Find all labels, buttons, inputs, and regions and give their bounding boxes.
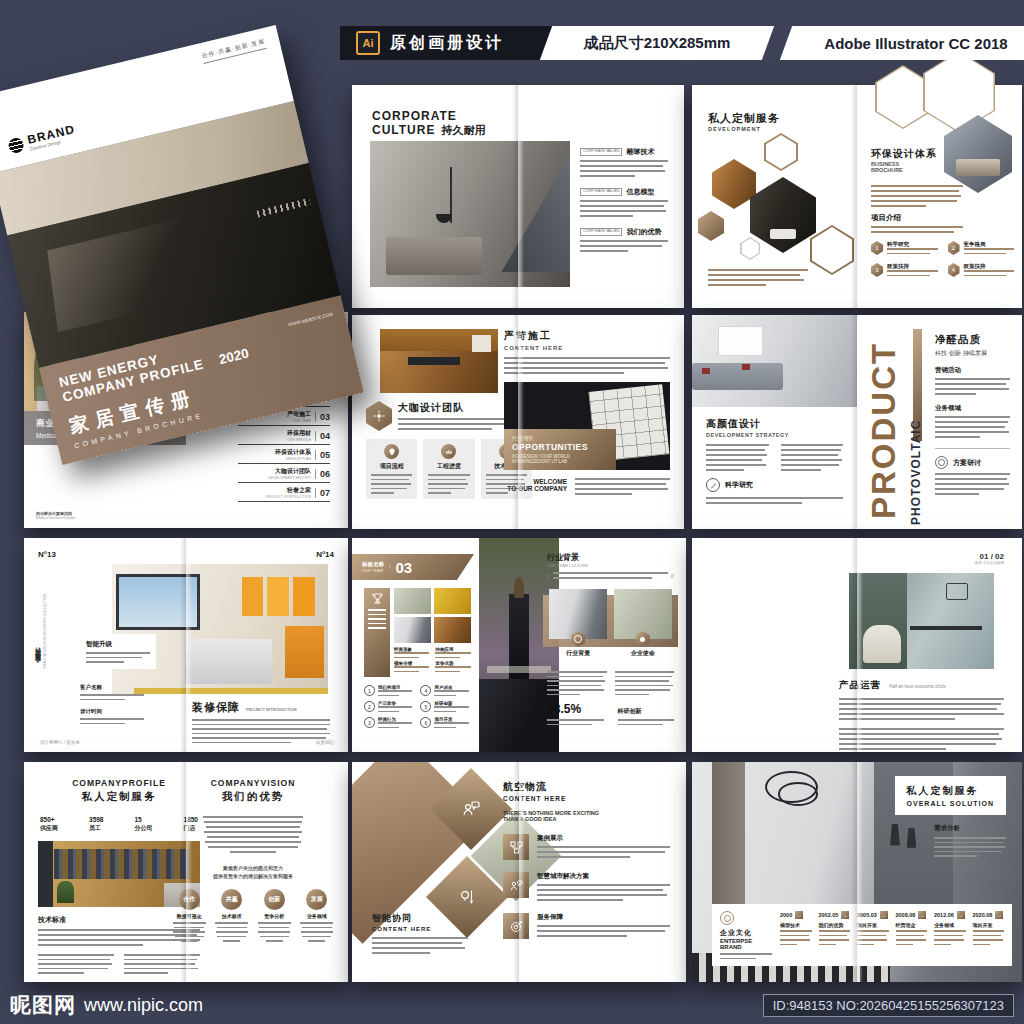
- spread-corporate-culture: CORPORATE CULTURE 持久耐用 CORPORATE VALUES …: [352, 85, 684, 308]
- arrow-badge: →: [795, 911, 803, 919]
- brand-logo: BRAND Creative Design: [7, 122, 78, 156]
- number-circle: 4: [420, 685, 431, 696]
- smart-item-label: 服务保障: [537, 913, 670, 922]
- pencil-icon: [706, 478, 720, 492]
- thumb-photo: [434, 588, 471, 614]
- greek-lines: [580, 200, 668, 217]
- overall-title-cn: 私人定制服务: [907, 784, 994, 798]
- team-card: 工程进度: [423, 439, 474, 499]
- overlay-en: OPPORTUNITIES: [512, 442, 608, 452]
- org-chart-icon: [503, 834, 529, 860]
- product-section1: 营销活动: [935, 366, 1010, 375]
- timeline-label: 项目开发: [857, 922, 889, 928]
- greek-lines: [504, 357, 670, 374]
- timeline-year: 2002.05: [819, 912, 839, 918]
- software-label: Adobe Illustrator CC 2018: [786, 26, 1024, 60]
- greek-lines: [435, 666, 470, 672]
- floorplan-photo: 经济增长 OPPORTUNITIES WE DESIGN YOUR WORLD …: [504, 382, 670, 470]
- culture-title-en2: CULTURE: [372, 123, 435, 137]
- ourteam-grid: 经营形象 结构应用 销售业绩 竞争优势: [352, 588, 479, 677]
- spread-ourteam-03: 标题名称 OUR TEAM / 03 经营形象: [352, 538, 686, 752]
- greek-lines: [871, 185, 963, 207]
- greek-lines: [372, 937, 468, 954]
- corporate-values-tag: CORPORATE VALUES: [580, 228, 622, 236]
- dir-num: 07: [315, 488, 330, 498]
- spread-overall-solution: 私人定制服务 OVERALL SOLUTION 需求分析 企业文化 ENTERP…: [692, 762, 1022, 982]
- timeline-year: 2008.08: [896, 912, 916, 918]
- target-arrow-icon: [503, 913, 529, 939]
- arrow-badge: →: [957, 911, 965, 919]
- arrow-badge: →: [841, 911, 849, 919]
- construction-title-en: CONTENT HERE: [504, 345, 670, 351]
- nipic-template-preview: { "header": {"ai_badge":"Ai","title":"原创…: [0, 0, 1024, 1024]
- industry-title-cn: 行业背景: [547, 552, 674, 563]
- greek-lines: [547, 719, 603, 725]
- stat: 3598员工: [89, 816, 103, 833]
- number-circle: 2: [364, 701, 375, 712]
- smart-item: 智慧城市解决方案: [503, 872, 670, 901]
- smart-right-title-en: CONTENT HERE: [503, 795, 670, 802]
- watermark-bar: 昵图网 www.nipic.com ID:948153 NO:202604251…: [0, 986, 1024, 1024]
- hexagon-photo: [750, 177, 816, 253]
- greek-lines: [394, 652, 429, 658]
- greek-lines: [86, 652, 150, 663]
- smart-item: 服务保障: [503, 913, 670, 939]
- directory-item: 大咖设计团队DEVELOPMENT HISTORY 06: [238, 463, 330, 482]
- greek-lines: [964, 248, 1015, 254]
- timeline-year: 2020.08: [973, 912, 993, 918]
- ourteam-numbered-list: 1我们的项目 4用户诉求 2产品竞争 5科研创新 3经营行为 6项目开发: [352, 677, 479, 728]
- hexdev-numbered: 1 科学研究 2 竞争格局 3 政策扶持 4 政策扶持: [871, 241, 1014, 277]
- dir-num: 06: [315, 469, 330, 479]
- stat-label: 供应商: [40, 824, 58, 833]
- hexdev-left-title-en: DEVELOPMENT: [708, 126, 780, 132]
- dir-num: 05: [315, 450, 330, 460]
- vision-title-en: COMPANYVISION: [172, 778, 334, 788]
- greek-lines: [618, 719, 674, 725]
- circle-sublabel: 竞争分析: [257, 913, 292, 919]
- greek-lines: [547, 671, 606, 695]
- directory-item: 环保设计体系SERVICE PLAN 05: [238, 444, 330, 463]
- greek-lines: [172, 816, 334, 853]
- arrow-badge: →: [918, 911, 926, 919]
- spread-design-team: 大咖设计团队 项目流程 工程进度 技术标准 严苛施工 CONTENT: [352, 315, 684, 529]
- side-vertical-text: 企业画册设计 GRADUATION DESIGN WORKS COLLECTIO…: [34, 594, 47, 669]
- brand-logo-icon: [7, 136, 25, 154]
- construction-title-cn: 严苛施工: [504, 329, 670, 343]
- number-circle: 3: [364, 717, 375, 728]
- product-left-tag: 科学研究: [725, 480, 753, 490]
- vision-note2: 提供有竞争力的通信解决方案和服务: [172, 873, 334, 879]
- stat-value: 15: [135, 816, 153, 823]
- greek-lines: [435, 652, 470, 658]
- dir-cn: 环保设计体系: [238, 448, 311, 457]
- no13-main: 装修保障 PROJECT INTRODUCTION: [192, 700, 330, 743]
- greek-lines: [580, 240, 668, 252]
- no13-main-cn: 装修保障: [192, 700, 240, 715]
- drawers-right-subtitle: Half an hour economic circle: [889, 684, 946, 689]
- brand-mark-icon: [720, 911, 734, 925]
- greek-lines: [887, 270, 938, 276]
- spread-product: 高颜值设计 DEVELOPMENT STRATEGY 科学研究 PRODUCT …: [692, 315, 1022, 529]
- culture-title-en1: CORPORATE: [372, 109, 485, 123]
- spread-drawers: 服务运维 品牌营销 技术标准 01 / 02 家居·品质生活画册: [692, 538, 1022, 752]
- vision-circle-item: 合作 数据可视化: [172, 889, 207, 942]
- vision-note1: 聚焦客户关注的痛点和压力: [172, 865, 334, 871]
- timeline-year: 2000: [780, 912, 792, 918]
- ribbon-cn: 标题名称: [362, 561, 384, 568]
- product-left-page: 高颜值设计 DEVELOPMENT STRATEGY 科学研究: [692, 315, 857, 529]
- corporate-values-tag: CORPORATE VALUES: [580, 188, 622, 196]
- no13-footer-right: 联系我们: [316, 740, 334, 745]
- timeline-brand-en2: BRAND: [720, 944, 772, 950]
- brochure-cover-mockup: 合作·共赢·创新·发展 BRAND Creative Design NEW EN…: [0, 25, 364, 465]
- greek-lines: [839, 698, 1004, 720]
- dir-en: OUR SERVICE: [238, 438, 311, 442]
- greek-lines: [38, 954, 114, 974]
- page-number: 01 / 02: [839, 552, 1004, 561]
- stat-label: 员工: [89, 824, 103, 833]
- no13-main-en: PROJECT INTRODUCTION: [246, 707, 297, 712]
- vision-circle-item: 发展 业务领域: [300, 889, 335, 942]
- overall-title-box: 私人定制服务 OVERALL SOLUTION: [895, 776, 1006, 815]
- greek-lines: [434, 722, 468, 728]
- greek-lines: [935, 473, 1010, 495]
- stat-label: 分公司: [135, 824, 153, 833]
- timeline-item: 2002.05→ 我们的优势: [819, 911, 851, 959]
- side-text-en: GRADUATION DESIGN WORKS COLLECTION: [43, 594, 47, 669]
- greek-lines: [964, 270, 1015, 276]
- overlay-cn: 经济增长: [512, 435, 608, 442]
- hex-number-badge: 3: [871, 263, 883, 277]
- stat-value: 98.5%: [547, 702, 603, 716]
- team-card-label: 项目流程: [371, 462, 412, 471]
- side-text-cn: 企业画册设计: [34, 594, 43, 669]
- smart-item: 案例展示: [503, 834, 670, 860]
- people-chat-icon: [503, 872, 529, 898]
- number-circle: 5: [420, 701, 431, 712]
- hexdev-right-title-cn: 环保设计体系: [871, 147, 937, 161]
- smart-tagline2: THAN A GOOD IDEA: [503, 816, 670, 822]
- top-info-bar: Ai 原创画册设计 成品尺寸210X285mm Adobe Illustrato…: [340, 26, 1024, 60]
- ourteam-right-page: 行业背景 OUR TEAM CULTURE // // 行业背景 企业使命: [535, 538, 686, 752]
- greek-lines: [80, 718, 144, 724]
- cover-slogan: 合作·共赢·创新·发展: [201, 37, 267, 64]
- timeline-item: 2008.08→ 经营理念: [896, 911, 928, 959]
- greek-lines: [887, 248, 938, 254]
- arrow-badge: →: [995, 911, 1003, 919]
- hexdev-right-sub2: BROCHURE: [871, 167, 937, 173]
- directory-item: 环保用材OUR SERVICE 04: [238, 425, 330, 444]
- no13-label2: 客户名称: [80, 684, 144, 691]
- hexagon-photo: [712, 159, 756, 209]
- product-right-subtitle: 科技·创新·持续发展: [935, 349, 1010, 358]
- product-section2: 业务领域: [935, 404, 1010, 413]
- hexdev-item-label: 科学研究: [887, 241, 938, 248]
- hexdev-item-label: 政策扶持: [964, 263, 1015, 270]
- stat-value: 850+: [40, 816, 58, 823]
- pin-icon: [384, 444, 399, 459]
- timeline-item: 2020.08→ 项目开发: [973, 911, 1005, 959]
- product-right-tag: 方案研讨: [953, 458, 981, 468]
- vision-circle-item: 共赢 技术标准: [215, 889, 250, 942]
- title-ribbon: 标题名称 OUR TEAM / 03: [352, 554, 474, 580]
- greek-lines: [257, 922, 292, 942]
- culture-title: CORPORATE CULTURE 持久耐用: [372, 109, 485, 138]
- card-label: 企业使命: [614, 649, 672, 658]
- adobe-illustrator-icon: Ai: [356, 31, 380, 55]
- ribbon-number: 03: [395, 559, 412, 576]
- greek-lines: [434, 706, 468, 712]
- vision-circles: 合作 数据可视化 共赢 技术标准 创新 竞争分析 发展 业务领域: [172, 889, 334, 942]
- greek-lines: [934, 837, 1006, 857]
- timeline-item: 2000→ 模型技术: [780, 911, 812, 959]
- greek-lines: [857, 930, 889, 945]
- timeline-brand-cn: 企业文化: [720, 928, 772, 938]
- person-chat-icon: [461, 799, 481, 819]
- circle-keyword: 创新: [264, 889, 285, 910]
- smart-item-label: 案例展示: [537, 834, 670, 843]
- timeline-item: 2005.03→ 项目开发: [857, 911, 889, 959]
- thumb-photo: [394, 617, 431, 643]
- overlay-card: 智能升级: [80, 634, 156, 669]
- trophy-panel: [364, 588, 390, 677]
- greek-lines: [896, 930, 928, 945]
- intro-footnote: 商业解决方案提供商 Medical Solution Provider: [36, 511, 76, 520]
- timeline-item: 2012.06→ 业务领域: [934, 911, 966, 959]
- circle-keyword: 发展: [306, 889, 327, 910]
- hexdev-item-label: 政策扶持: [887, 263, 938, 270]
- industry-card: 企业使命: [614, 589, 672, 658]
- greek-lines: [378, 722, 412, 728]
- product-vertical-title: PRODUCT: [865, 325, 903, 519]
- overlay-sub2: MINIMINCIDOUNT UT LAB: [512, 459, 608, 464]
- dir-en: SERVICE PLAN: [238, 457, 311, 461]
- timeline-label: 业务领域: [934, 922, 966, 928]
- greek-lines: [553, 572, 667, 579]
- greek-lines: [300, 922, 335, 942]
- spread-company-profile: COMPANYPROFILE 私人定制服务 850+供应商 3598员工 15分…: [24, 762, 348, 982]
- product-left-title-cn: 高颜值设计: [706, 417, 843, 431]
- site-url: www.nipic.com: [84, 995, 203, 1016]
- balcony-photo: [849, 573, 994, 669]
- timeline-year: 2005.03: [857, 912, 877, 918]
- dir-en: PRODUCT INTRODUCTION: [238, 495, 311, 499]
- arrow-badge: →: [880, 911, 888, 919]
- target-icon: [935, 456, 948, 469]
- circle-sublabel: 技术标准: [215, 913, 250, 919]
- page-number-sub: 家居·品质生活画册: [839, 561, 1004, 565]
- smart-item-label: 智慧城市解决方案: [537, 872, 670, 881]
- kitchen-photo: [380, 329, 498, 393]
- smart-right-page: 航空物流 CONTENT HERE THERE'S NOTHING MORE E…: [487, 762, 686, 982]
- greek-lines: [378, 706, 412, 712]
- team-right-page: 严苛施工 CONTENT HERE 经济增长 OPPORTUNITIES WE …: [488, 315, 684, 529]
- industry-card: 行业背景: [549, 589, 607, 658]
- welcome-line1: WELCOME: [504, 478, 567, 485]
- product-size-label: 成品尺寸210X285mm: [546, 26, 768, 60]
- team-card-label: 工程进度: [428, 462, 469, 471]
- dir-num: 04: [315, 431, 330, 441]
- stat: 850+供应商: [40, 816, 58, 833]
- timeline-label: 我们的优势: [819, 922, 851, 928]
- dir-cn: 轻奢之家: [238, 486, 311, 495]
- circle-keyword: 共赢: [221, 889, 242, 910]
- greek-lines: [839, 728, 1004, 750]
- vision-circle-item: 创新 竞争分析: [257, 889, 292, 942]
- stat: 15分公司: [135, 816, 153, 833]
- thumb-photo: [394, 588, 431, 614]
- greek-lines: [706, 497, 843, 504]
- trophy-icon: [372, 593, 383, 604]
- culture-title-cn: 持久耐用: [441, 123, 485, 138]
- number-circle: 1: [364, 685, 375, 696]
- greek-lines: [215, 922, 250, 942]
- greek-lines: [819, 930, 851, 945]
- no13-left-list: 客户名称 设计时间: [80, 684, 144, 724]
- overall-tag-block: 需求分析: [934, 824, 1006, 857]
- dir-num: 03: [315, 412, 330, 422]
- hexagon-solid: [698, 211, 724, 241]
- timeline-label: 经营理念: [896, 922, 928, 928]
- no13-label1: 智能升级: [86, 640, 150, 649]
- opportunities-overlay: 经济增长 OPPORTUNITIES WE DESIGN YOUR WORLD …: [504, 429, 616, 470]
- culture-section3: 我们的优势: [626, 227, 661, 237]
- greek-lines: [781, 444, 844, 471]
- greek-lines: [172, 922, 207, 942]
- hexdev-left-page: 私人定制服务 DEVELOPMENT: [692, 85, 857, 308]
- hex-number-badge: 1: [871, 241, 883, 255]
- greek-lines: [394, 666, 429, 672]
- card-label: 行业背景: [549, 649, 607, 658]
- bar-software-segment: Adobe Illustrator CC 2018: [780, 26, 1024, 60]
- greek-lines: [368, 609, 386, 629]
- product-vertical-subtitle: PHOTOVOLTAIC: [909, 445, 923, 525]
- overall-tag: 需求分析: [934, 824, 1006, 833]
- overall-title-en: OVERALL SOLUTION: [907, 800, 994, 807]
- bar-size-segment: 成品尺寸210X285mm: [540, 26, 774, 60]
- hexdev-left-title-cn: 私人定制服务: [708, 111, 780, 126]
- ourteam-left-page: 标题名称 OUR TEAM / 03 经营形象: [352, 538, 479, 752]
- dir-en: DEVELOPMENT HISTORY: [238, 476, 311, 480]
- intro-footnote-en: Medical Solution Provider: [36, 516, 76, 520]
- greek-lines: [434, 690, 468, 696]
- spread-office-n13: N°13 N°14 企业画册设计 GRADUATION DESIGN WORKS…: [24, 538, 348, 752]
- hex-number-badge: 4: [948, 263, 960, 277]
- greek-lines: [378, 690, 412, 696]
- hexdev-item-label: 竞争格局: [964, 241, 1015, 248]
- greek-lines: [935, 416, 1010, 438]
- greek-lines: [575, 478, 670, 495]
- circle-sublabel: 业务领域: [300, 913, 335, 919]
- greek-lines: [935, 378, 1010, 395]
- hexagon-cluster: [698, 133, 858, 263]
- bar-title: 原创画册设计: [390, 33, 504, 54]
- spread-hex-development: 私人定制服务 DEVELOPMENT 环保设计体系 BUSINESS BROCH…: [692, 85, 1022, 308]
- living-room-photo: [692, 315, 857, 407]
- greek-lines: [615, 671, 674, 695]
- circle-sublabel: 数据可视化: [172, 913, 207, 919]
- timeline-items: 2000→ 模型技术 2002.05→ 我们的优势 2005.03→ 项目开发 …: [780, 911, 1004, 959]
- bar-title-segment: Ai 原创画册设计: [340, 26, 568, 60]
- greek-lines: [428, 474, 469, 494]
- timeline-label: 模型技术: [780, 922, 812, 928]
- drawers-right-page: 01 / 02 家居·品质生活画册 产品运营 Half an hour econ…: [821, 538, 1022, 752]
- product-right-page: PRODUCT PHOTOVOLTAIC 净醛品质 科技·创新·持续发展 营销活…: [857, 315, 1022, 529]
- product-left-title-en: DEVELOPMENT STRATEGY: [706, 432, 843, 438]
- greek-lines: [537, 846, 670, 858]
- greek-lines: [720, 953, 772, 959]
- welcome-line2: TO OUR COMPANY: [504, 485, 567, 492]
- office-photo: [112, 564, 328, 694]
- page-number-right: N°14: [316, 550, 334, 559]
- dir-cn: 大咖设计团队: [238, 467, 311, 476]
- culture-sections: CORPORATE VALUES 雕琢技术 CORPORATE VALUES 信…: [580, 147, 668, 252]
- circle-keyword: 合作: [179, 889, 200, 910]
- smart-left-title-cn: 智能协同: [372, 912, 468, 925]
- profile-right-page: COMPANYVISION 我们的优势 聚焦客户关注的痛点和压力 提供有竞争力的…: [158, 762, 348, 982]
- corporate-values-tag: CORPORATE VALUES: [580, 148, 622, 156]
- dir-cn: 环保用材: [238, 429, 311, 438]
- smart-right-title-cn: 航空物流: [503, 780, 670, 794]
- greek-lines: [192, 719, 330, 743]
- greek-lines: [780, 930, 812, 945]
- bulb-pencil-icon: [457, 887, 477, 907]
- greek-lines: [708, 269, 808, 286]
- product-right-title: 净醛品质: [935, 333, 1010, 347]
- page-number-left: N°13: [38, 550, 56, 559]
- team-card: 项目流程: [366, 439, 417, 499]
- no13-footer-left: 设计要用心 / 显质感: [40, 740, 80, 745]
- hexdev-right-page: 环保设计体系 BUSINESS BROCHURE 项目介绍 1 科学研究 2 竞…: [857, 85, 1022, 308]
- hex-number-badge: 2: [948, 241, 960, 255]
- greek-lines: [973, 930, 1005, 945]
- stat-label: 科研创新: [618, 707, 674, 716]
- greek-lines: [934, 930, 966, 945]
- directory-item: 轻奢之家PRODUCT INTRODUCTION 07: [238, 482, 330, 502]
- greek-lines: [80, 694, 144, 700]
- image-id-box: ID:948153 NO:20260425155256307123: [763, 994, 1014, 1017]
- greek-lines: [706, 444, 769, 471]
- drawers-right-title: 产品运营: [839, 679, 881, 692]
- no13-label3: 设计时间: [80, 708, 144, 715]
- greek-lines: [537, 884, 670, 901]
- hexdev-section: 项目介绍: [871, 213, 963, 223]
- hand-icon: [441, 444, 456, 459]
- timeline-brand: 企业文化 ENTERPSE BRAND: [720, 911, 772, 959]
- industry-title-en: OUR TEAM CULTURE: [547, 563, 674, 568]
- timeline-year: 2012.06: [934, 912, 954, 918]
- timeline-band: 企业文化 ENTERPSE BRAND 2000→ 模型技术 2002.05→ …: [712, 904, 1012, 966]
- team-hex-icon: [366, 401, 392, 431]
- vision-title-cn: 我们的优势: [172, 790, 334, 804]
- greek-lines: [580, 160, 668, 177]
- culture-section2: 信息模型: [626, 187, 654, 197]
- smart-left-title-en: CONTENT HERE: [372, 926, 468, 932]
- spread-smart-diamonds: 智能协同 CONTENT HERE 航空物流 CONTENT HERE THER…: [352, 762, 686, 982]
- number-circle: 6: [420, 717, 431, 728]
- greek-lines: [537, 925, 670, 937]
- greek-lines: [871, 226, 963, 233]
- stat-value: 3598: [89, 816, 103, 823]
- loft-photo: [370, 141, 570, 287]
- thumb-photo: [434, 617, 471, 643]
- timeline-label: 项目开发: [973, 922, 1005, 928]
- site-name: 昵图网: [10, 991, 76, 1019]
- culture-section1: 雕琢技术: [626, 147, 654, 157]
- ribbon-en: OUR TEAM: [362, 568, 384, 573]
- greek-lines: [371, 474, 412, 494]
